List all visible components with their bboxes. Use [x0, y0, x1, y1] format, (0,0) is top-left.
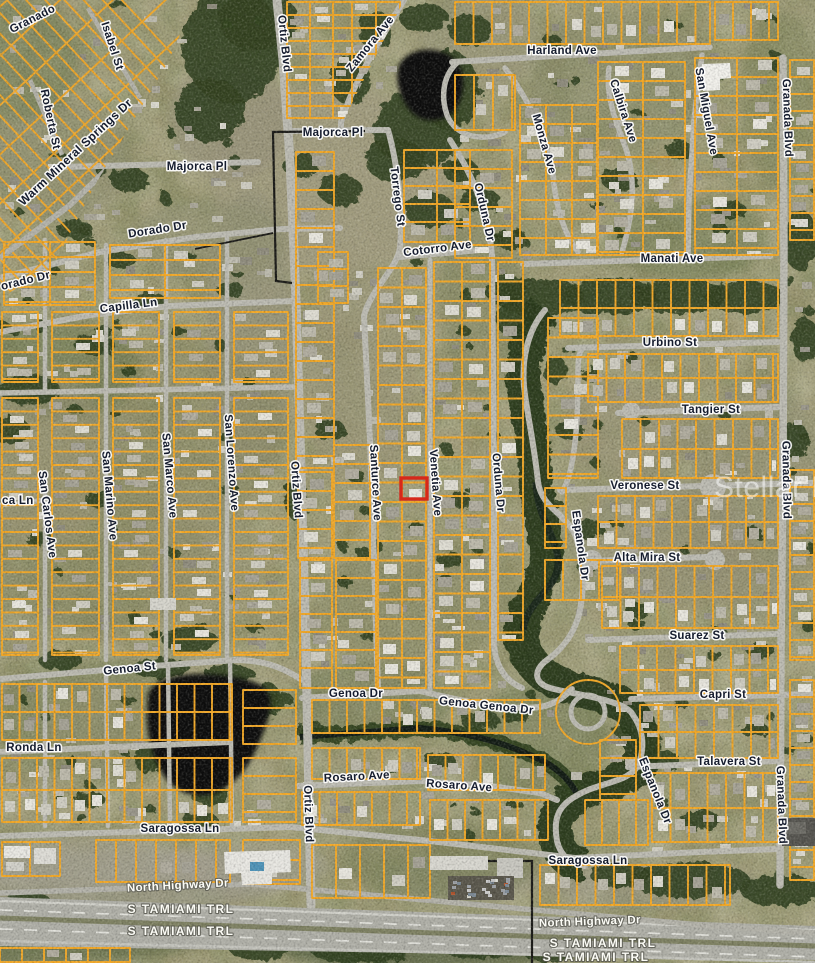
svg-text:Saragossa Ln: Saragossa Ln	[548, 855, 627, 867]
svg-text:Veronese St: Veronese St	[610, 480, 679, 492]
svg-text:Urbino St: Urbino St	[643, 337, 697, 349]
svg-text:Saragossa Ln: Saragossa Ln	[140, 823, 219, 835]
svg-text:S TAMIAMI TRL: S TAMIAMI TRL	[128, 902, 235, 916]
svg-text:Manati Ave: Manati Ave	[641, 253, 704, 265]
svg-text:Ronda Ln: Ronda Ln	[6, 742, 61, 754]
svg-text:Capri St: Capri St	[700, 689, 747, 701]
svg-text:Talavera St: Talavera St	[697, 756, 761, 768]
svg-text:Majorca Pl: Majorca Pl	[167, 161, 228, 173]
svg-text:S TAMIAMI TRL: S TAMIAMI TRL	[550, 936, 657, 950]
svg-text:Tangier St: Tangier St	[682, 404, 740, 416]
svg-text:S TAMIAMI TRL: S TAMIAMI TRL	[543, 950, 650, 963]
svg-text:Suarez St: Suarez St	[669, 630, 724, 642]
svg-text:S TAMIAMI TRL: S TAMIAMI TRL	[128, 924, 235, 938]
svg-text:Majorca Pl: Majorca Pl	[303, 127, 364, 139]
svg-text:Stellar MLS: Stellar MLS	[714, 471, 815, 504]
svg-text:Genoa Dr: Genoa Dr	[329, 688, 383, 700]
svg-text:Ortiz Blvd: Ortiz Blvd	[301, 785, 315, 843]
svg-text:ca Ln: ca Ln	[2, 495, 34, 507]
svg-text:Harland Ave: Harland Ave	[527, 45, 597, 57]
svg-text:Alta Mira St: Alta Mira St	[614, 552, 681, 564]
